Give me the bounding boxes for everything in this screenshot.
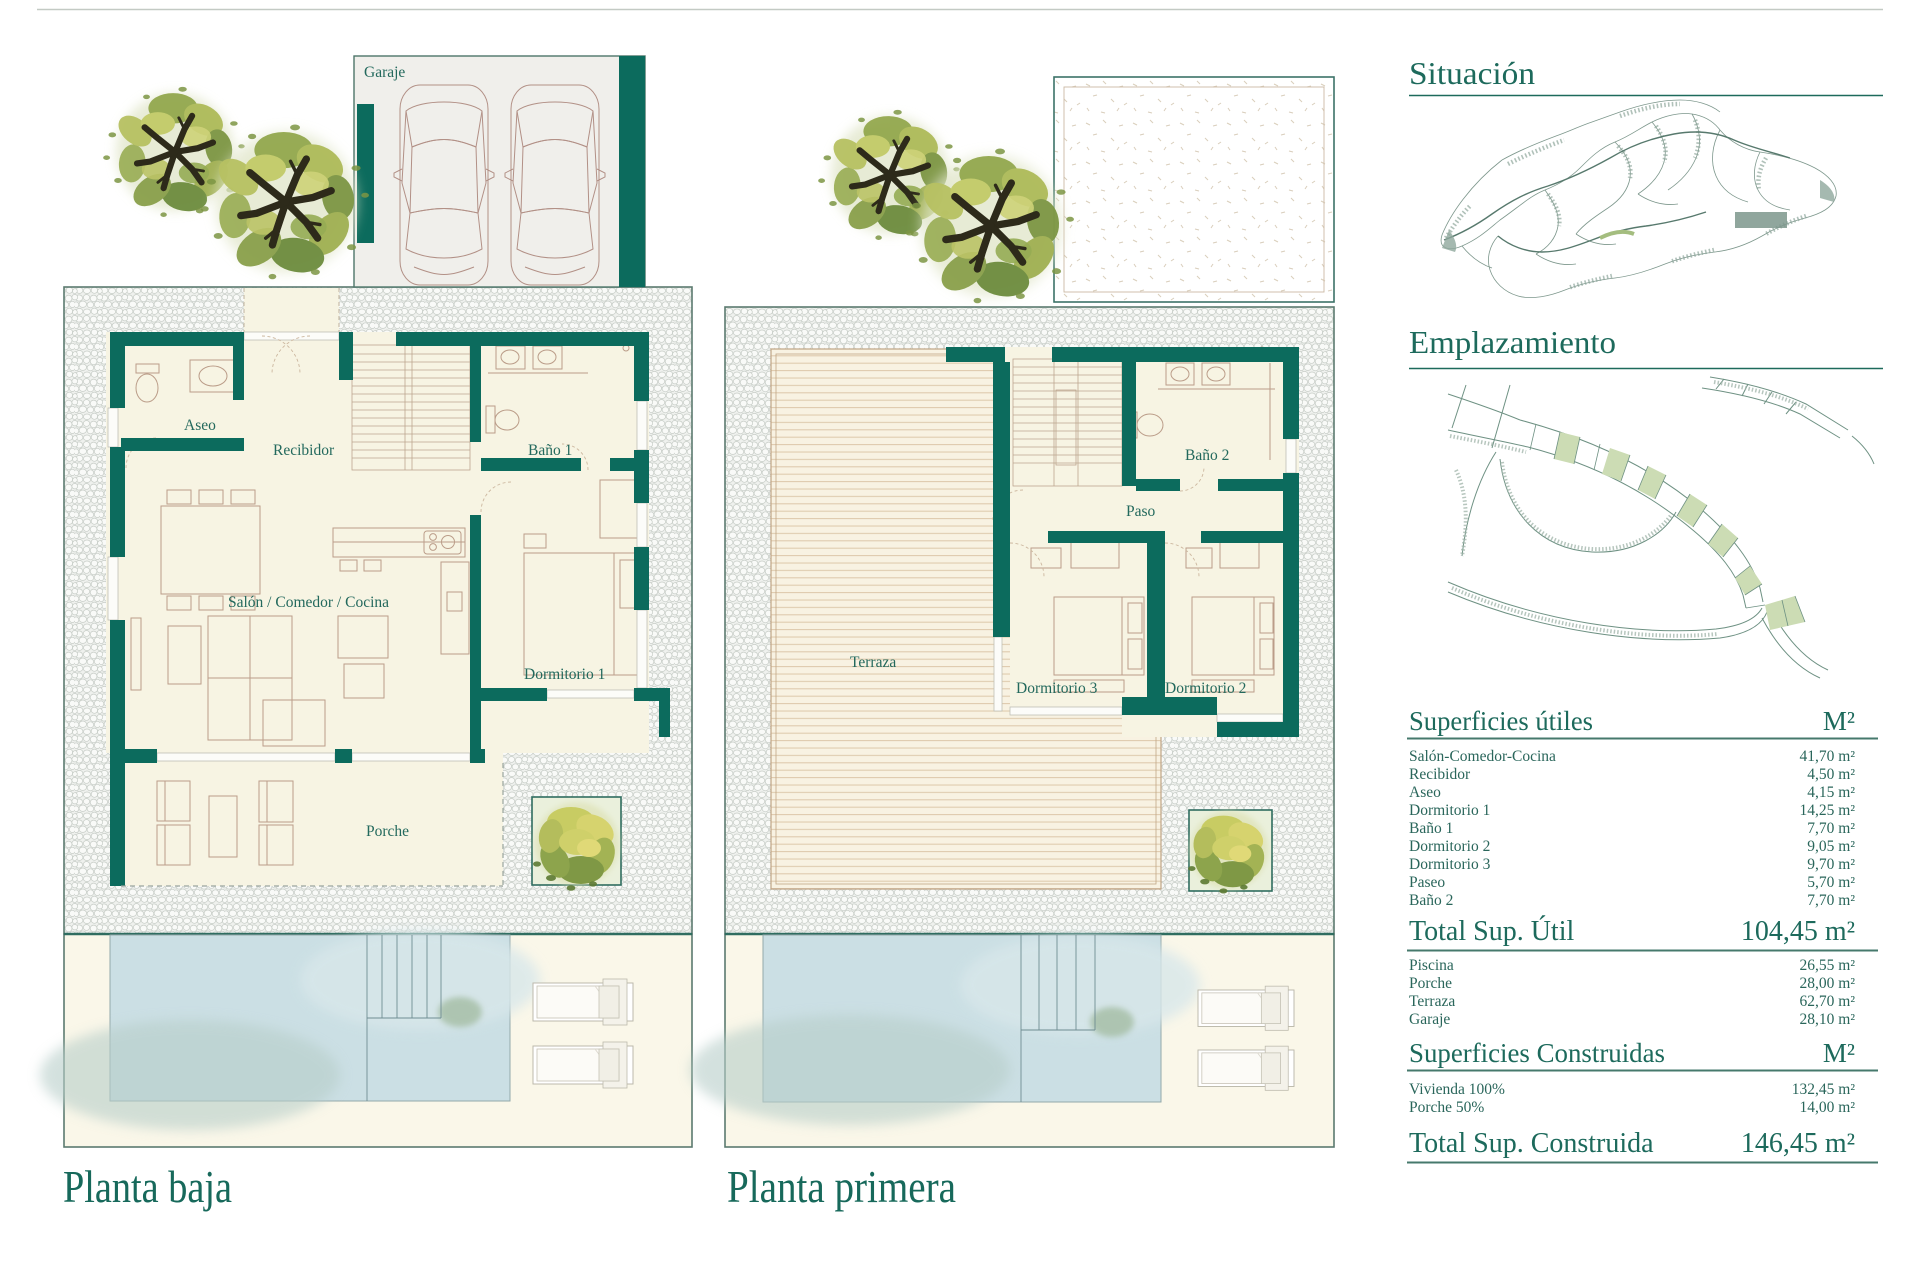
svg-text:Situación: Situación <box>1409 55 1535 91</box>
svg-text:9,05 m²: 9,05 m² <box>1807 838 1855 855</box>
svg-text:28,10 m²: 28,10 m² <box>1800 1011 1856 1028</box>
svg-text:Total Sup. Útil: Total Sup. Útil <box>1409 916 1574 947</box>
svg-text:Piscina: Piscina <box>1409 957 1454 974</box>
svg-text:Recibidor: Recibidor <box>273 442 335 459</box>
svg-text:Terraza: Terraza <box>850 654 896 671</box>
svg-text:Baño 2: Baño 2 <box>1409 892 1453 909</box>
svg-text:Salón-Comedor-Cocina: Salón-Comedor-Cocina <box>1409 748 1556 765</box>
svg-text:Paseo: Paseo <box>1409 874 1445 891</box>
svg-text:Porche: Porche <box>1409 975 1452 992</box>
svg-text:14,25 m²: 14,25 m² <box>1800 802 1856 819</box>
svg-text:Baño 2: Baño 2 <box>1185 447 1229 464</box>
svg-text:41,70 m²: 41,70 m² <box>1800 748 1856 765</box>
svg-text:Emplazamiento: Emplazamiento <box>1409 324 1616 360</box>
svg-text:Total Sup. Construida: Total Sup. Construida <box>1409 1128 1654 1159</box>
svg-text:62,70 m²: 62,70 m² <box>1800 993 1856 1010</box>
svg-text:Salón / Comedor / Cocina: Salón / Comedor / Cocina <box>228 594 389 611</box>
svg-text:9,70 m²: 9,70 m² <box>1807 856 1855 873</box>
svg-text:Baño 1: Baño 1 <box>528 442 572 459</box>
svg-text:28,00 m²: 28,00 m² <box>1800 975 1856 992</box>
svg-text:Superficies Construidas: Superficies Construidas <box>1409 1038 1665 1068</box>
svg-text:Garaje: Garaje <box>1409 1011 1450 1028</box>
svg-text:132,45 m²: 132,45 m² <box>1792 1081 1856 1098</box>
svg-text:7,70 m²: 7,70 m² <box>1807 892 1855 909</box>
svg-text:Terraza: Terraza <box>1409 993 1455 1010</box>
svg-text:Porche 50%: Porche 50% <box>1409 1099 1484 1116</box>
svg-text:7,70 m²: 7,70 m² <box>1807 820 1855 837</box>
svg-text:Dormitorio 3: Dormitorio 3 <box>1409 856 1491 873</box>
svg-text:Planta baja: Planta baja <box>63 1161 232 1212</box>
svg-text:4,50 m²: 4,50 m² <box>1807 766 1855 783</box>
svg-text:Dormitorio 2: Dormitorio 2 <box>1409 838 1490 855</box>
svg-text:M²: M² <box>1823 1038 1855 1068</box>
svg-text:Aseo: Aseo <box>184 417 216 434</box>
svg-text:4,15 m²: 4,15 m² <box>1807 784 1855 801</box>
svg-text:Dormitorio 1: Dormitorio 1 <box>1409 802 1490 819</box>
svg-text:5,70 m²: 5,70 m² <box>1807 874 1855 891</box>
svg-text:M²: M² <box>1823 706 1855 736</box>
svg-text:Superficies útiles: Superficies útiles <box>1409 706 1593 736</box>
svg-text:104,45 m²: 104,45 m² <box>1741 916 1855 947</box>
svg-text:Garaje: Garaje <box>364 64 405 81</box>
svg-text:146,45 m²: 146,45 m² <box>1741 1128 1855 1159</box>
svg-text:Aseo: Aseo <box>1409 784 1441 801</box>
svg-text:Recibidor: Recibidor <box>1409 766 1471 783</box>
svg-text:Vivienda 100%: Vivienda 100% <box>1409 1081 1505 1098</box>
svg-text:Baño 1: Baño 1 <box>1409 820 1453 837</box>
svg-text:Dormitorio 2: Dormitorio 2 <box>1165 680 1246 697</box>
svg-text:Dormitorio 1: Dormitorio 1 <box>524 666 605 683</box>
svg-text:26,55 m²: 26,55 m² <box>1800 957 1856 974</box>
svg-text:Porche: Porche <box>366 823 409 840</box>
svg-text:14,00 m²: 14,00 m² <box>1800 1099 1856 1116</box>
svg-text:Dormitorio 3: Dormitorio 3 <box>1016 680 1098 697</box>
svg-text:Paso: Paso <box>1126 503 1156 520</box>
svg-text:Planta primera: Planta primera <box>727 1161 956 1212</box>
